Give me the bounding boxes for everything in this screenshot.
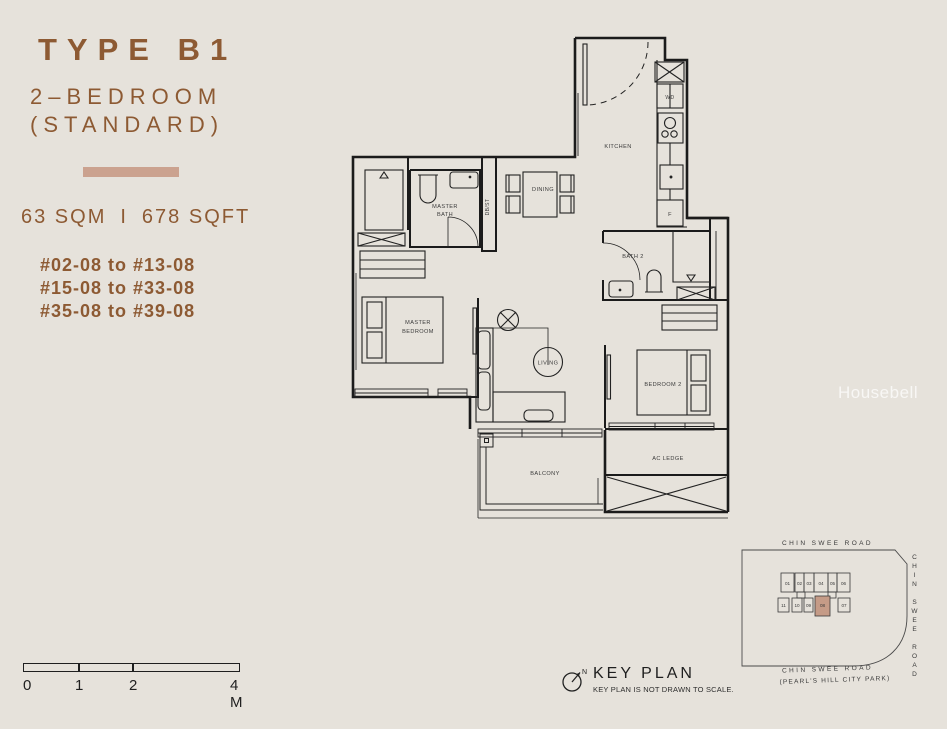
label-kitchen: KITCHEN <box>604 144 631 150</box>
unit-type-title: TYPE B1 <box>38 32 237 68</box>
chair <box>506 196 520 213</box>
unit-label: 03 <box>806 581 812 586</box>
unit-label: 02 <box>797 581 803 586</box>
shower-stall <box>365 170 403 230</box>
area-sqft: 678 SQFT <box>142 206 250 229</box>
dining-furniture <box>506 172 574 217</box>
scale-tick <box>78 663 80 672</box>
label-dining: DINING <box>532 187 554 193</box>
dresser <box>360 251 425 278</box>
basin-icon <box>609 281 633 297</box>
dresser <box>662 305 717 330</box>
road-label-top: CHIN SWEE ROAD <box>735 540 920 547</box>
sofa-pillow <box>524 410 553 421</box>
unit-label: 07 <box>841 603 847 608</box>
floorplan-drawing: KITCHEN WD F DINING DB/ST MASTER BATH MA… <box>330 25 760 530</box>
unit-label-highlighted: 08 <box>820 603 826 608</box>
keyplan-note: KEY PLAN IS NOT DRAWN TO SCALE. <box>593 685 734 694</box>
entry-door <box>578 42 648 156</box>
keyplan-title: KEY PLAN <box>593 665 695 683</box>
unit-area: 63 SQM I 678 SQFT <box>21 206 250 229</box>
bedroom2-furniture <box>607 287 717 415</box>
scale-label: 0 <box>23 677 31 694</box>
kitchen-counter <box>655 60 687 227</box>
pillow <box>691 385 706 411</box>
stack-range: #02-08 to #13-08 <box>40 254 195 277</box>
door-swing-arc <box>587 42 648 105</box>
pillow <box>367 332 382 358</box>
pillow <box>367 302 382 328</box>
label-living: LIVING <box>538 361 559 367</box>
north-compass-icon: N <box>560 666 590 696</box>
unit-label: 06 <box>841 581 847 586</box>
room-labels: KITCHEN WD F DINING DB/ST MASTER BATH MA… <box>402 95 684 477</box>
sofa-cushion <box>478 331 490 369</box>
watermark: Housebell <box>838 383 918 403</box>
ac-ledge-cross <box>607 477 726 511</box>
label-master-bedroom-2: BEDROOM <box>402 329 434 335</box>
bath2-fixtures <box>603 231 716 300</box>
floor-trap-icon <box>687 275 695 281</box>
label-master-bedroom-1: MASTER <box>405 320 431 326</box>
accent-divider <box>83 167 179 177</box>
toilet-icon <box>418 175 438 203</box>
basin-icon <box>450 172 478 188</box>
unit-label: 10 <box>794 603 800 608</box>
bath-door-arc <box>448 217 478 247</box>
label-balcony: BALCONY <box>530 471 560 477</box>
floor-trap-icon <box>380 172 388 178</box>
floorplan-page: TYPE B1 2–BEDROOM (STANDARD) 63 SQM I 67… <box>0 0 947 729</box>
north-letter: N <box>582 669 587 676</box>
sliding-door-leaf <box>607 355 611 399</box>
scale-label: 2 <box>129 677 137 694</box>
door-leaf <box>583 44 587 105</box>
keyplan-map: CHIN SWEE ROAD CHIN SWEE ROAD CHIN SWEE … <box>735 538 947 708</box>
label-ac-ledge: AC LEDGE <box>652 456 684 462</box>
toilet-icon <box>645 270 663 292</box>
bath2-door-arc <box>603 243 640 280</box>
outer-walls <box>353 38 728 512</box>
unit-label: 01 <box>785 581 791 586</box>
label-bedroom2: BEDROOM 2 <box>644 382 681 388</box>
scale-bar: 0 1 2 4 M <box>23 663 253 703</box>
unit-label: 11 <box>781 603 786 608</box>
scale-tick <box>132 663 134 672</box>
label-master-bath-1: MASTER <box>432 204 458 210</box>
sofa-cushion <box>478 372 490 410</box>
scale-label: 4 M <box>230 677 253 711</box>
label-wd: WD <box>665 95 674 101</box>
master-bath-fixtures <box>365 170 478 247</box>
unit-label: 05 <box>830 581 836 586</box>
chair <box>560 196 574 213</box>
scale-label: 1 <box>75 677 83 694</box>
area-sqm: 63 SQM <box>21 206 106 229</box>
unit-subtitle-bedrooms: 2–BEDROOM <box>30 84 222 110</box>
pillow <box>691 355 706 381</box>
area-separator: I <box>120 206 128 229</box>
unit-subtitle-standard: (STANDARD) <box>30 112 224 138</box>
label-master-bath-2: BATH <box>437 212 453 218</box>
label-fridge: F <box>668 212 672 218</box>
stack-range: #35-08 to #39-08 <box>40 300 195 323</box>
unit-label: 04 <box>818 581 824 586</box>
master-bedroom-furniture <box>356 233 477 370</box>
column <box>480 434 493 447</box>
stack-range: #15-08 to #33-08 <box>40 277 195 300</box>
dining-table <box>523 172 557 217</box>
label-dbst: DB/ST <box>485 199 491 216</box>
chair <box>506 175 520 192</box>
unit-label: 09 <box>806 603 812 608</box>
sofa-chaise <box>493 392 565 422</box>
label-bath2: BATH 2 <box>622 254 644 260</box>
stack-list: #02-08 to #13-08 #15-08 to #33-08 #35-08… <box>40 254 195 323</box>
chair <box>560 175 574 192</box>
building-footprint <box>778 573 850 616</box>
